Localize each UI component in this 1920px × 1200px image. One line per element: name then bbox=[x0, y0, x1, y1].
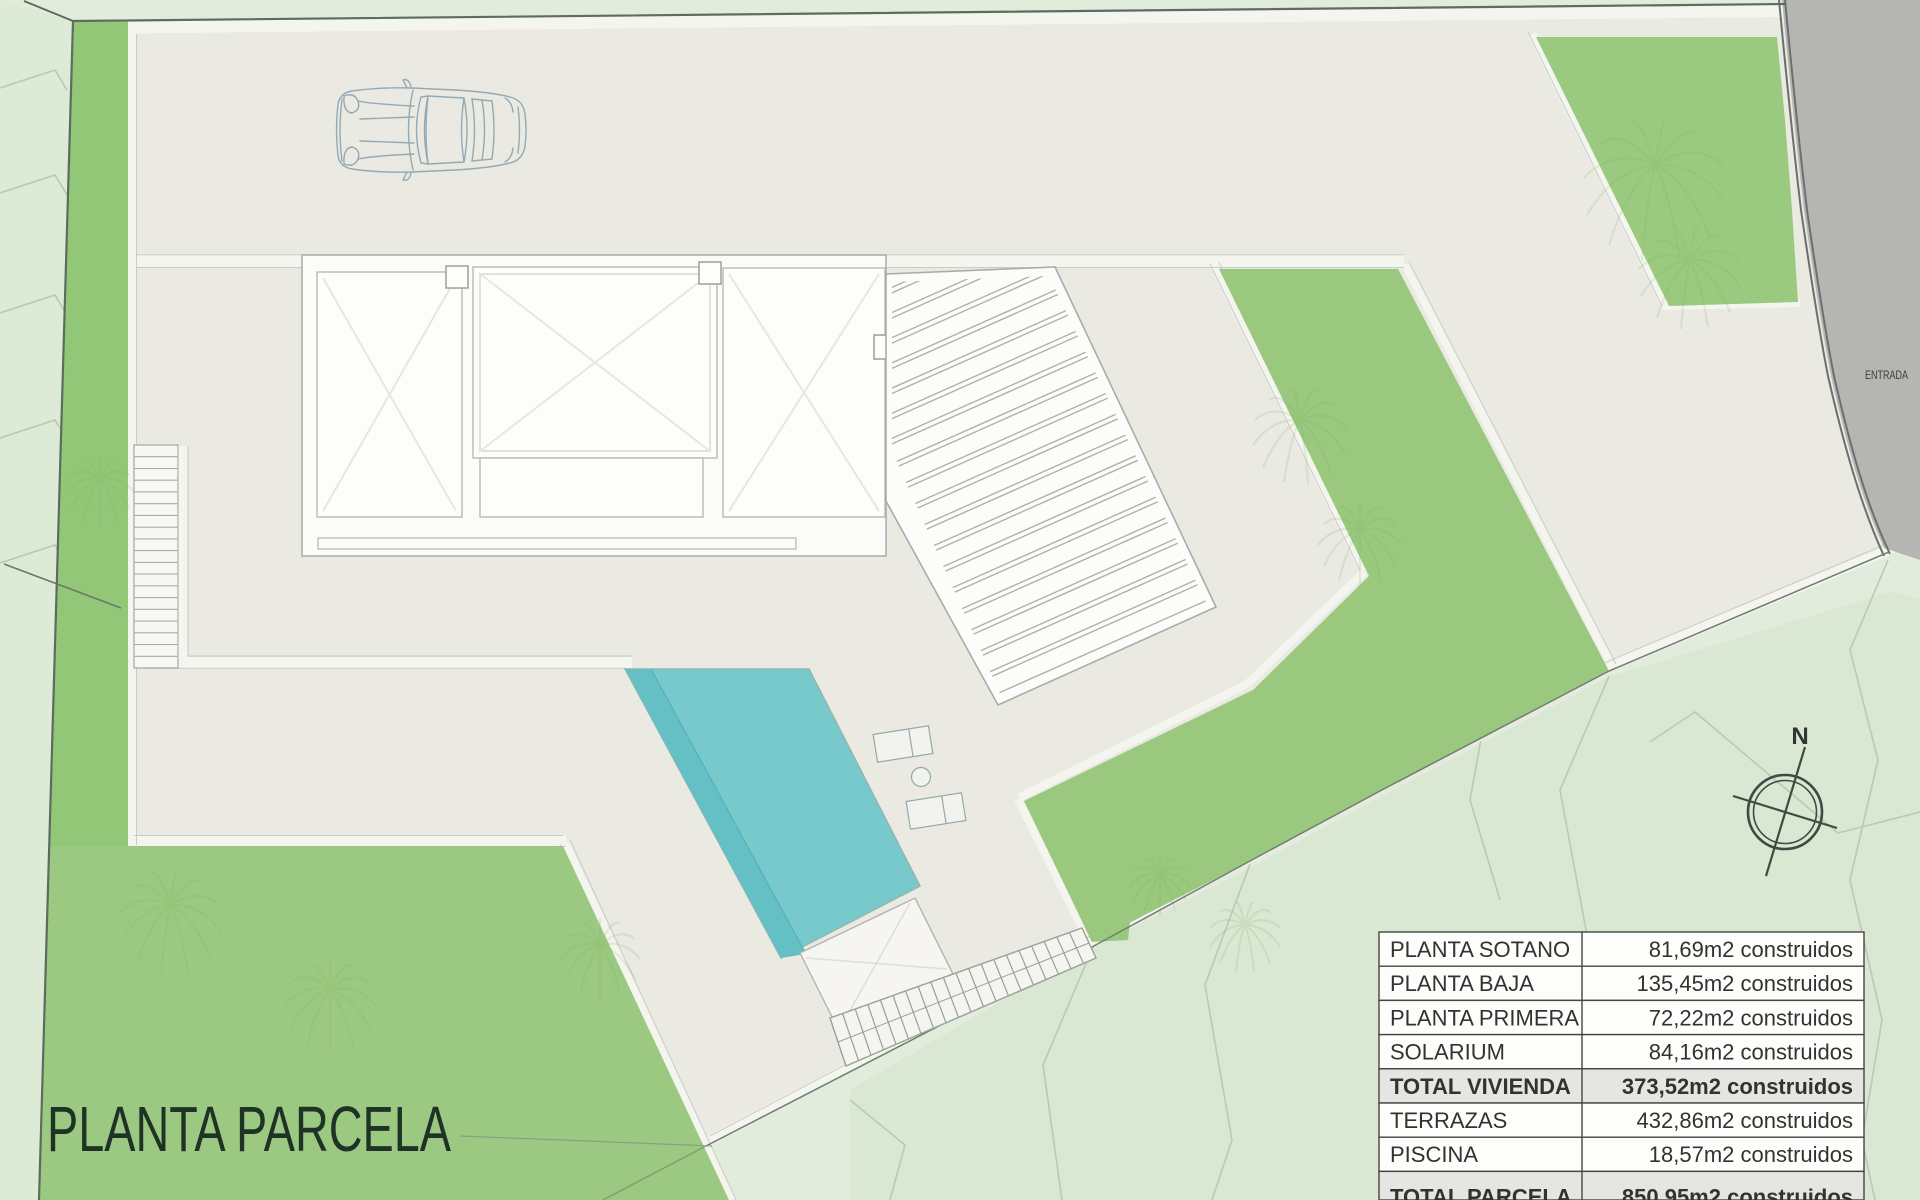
svg-text:373,52m2 construidos: 373,52m2 construidos bbox=[1622, 1074, 1853, 1099]
svg-text:18,57m2 construidos: 18,57m2 construidos bbox=[1649, 1142, 1853, 1167]
svg-text:72,22m2 construidos: 72,22m2 construidos bbox=[1649, 1005, 1853, 1030]
svg-text:SOLARIUM: SOLARIUM bbox=[1390, 1040, 1505, 1065]
svg-text:PISCINA: PISCINA bbox=[1390, 1142, 1478, 1167]
svg-text:TOTAL PARCELA: TOTAL PARCELA bbox=[1390, 1184, 1572, 1200]
svg-text:850,95m2 construidos: 850,95m2 construidos bbox=[1622, 1184, 1853, 1200]
svg-text:TERRAZAS: TERRAZAS bbox=[1390, 1108, 1507, 1133]
svg-text:135,45m2 construidos: 135,45m2 construidos bbox=[1637, 971, 1853, 996]
svg-text:84,16m2 construidos: 84,16m2 construidos bbox=[1649, 1040, 1853, 1065]
svg-text:N: N bbox=[1791, 723, 1808, 750]
svg-text:432,86m2 construidos: 432,86m2 construidos bbox=[1637, 1108, 1853, 1133]
svg-text:PLANTA PARCELA: PLANTA PARCELA bbox=[47, 1093, 451, 1165]
svg-text:PLANTA SOTANO: PLANTA SOTANO bbox=[1390, 937, 1570, 962]
svg-text:PLANTA PRIMERA: PLANTA PRIMERA bbox=[1390, 1005, 1579, 1030]
svg-text:PLANTA BAJA: PLANTA BAJA bbox=[1390, 971, 1534, 996]
svg-text:TOTAL VIVIENDA: TOTAL VIVIENDA bbox=[1390, 1074, 1571, 1099]
svg-text:81,69m2 construidos: 81,69m2 construidos bbox=[1649, 937, 1853, 962]
svg-text:ENTRADA: ENTRADA bbox=[1865, 370, 1908, 382]
